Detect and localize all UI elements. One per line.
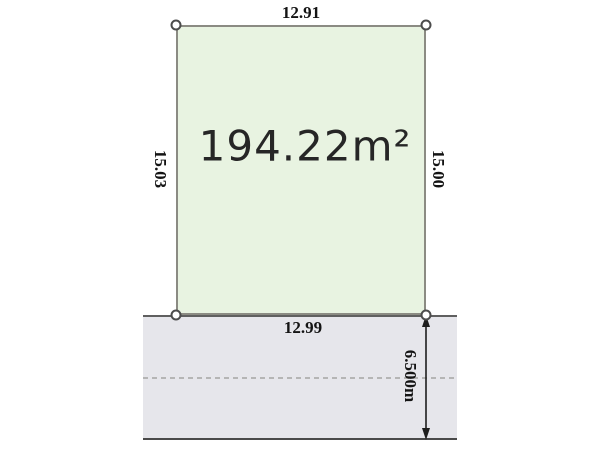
land-plot-diagram: 194.22m² 12.91 15.03 15.00 12.99 6.500m <box>0 0 600 449</box>
dimension-bottom: 12.99 <box>284 318 322 338</box>
corner-marker-bottom-right <box>421 310 432 321</box>
plot-area-label: 194.22m² <box>199 122 412 171</box>
corner-marker-top-left <box>171 20 182 31</box>
corner-marker-bottom-left <box>171 310 182 321</box>
dimension-top: 12.91 <box>282 3 320 23</box>
dimension-right: 15.00 <box>428 150 448 188</box>
road-width-arrow-icon <box>418 315 434 440</box>
corner-marker-top-right <box>421 20 432 31</box>
road-width-label: 6.500m <box>400 350 420 402</box>
dimension-left: 15.03 <box>150 150 170 188</box>
